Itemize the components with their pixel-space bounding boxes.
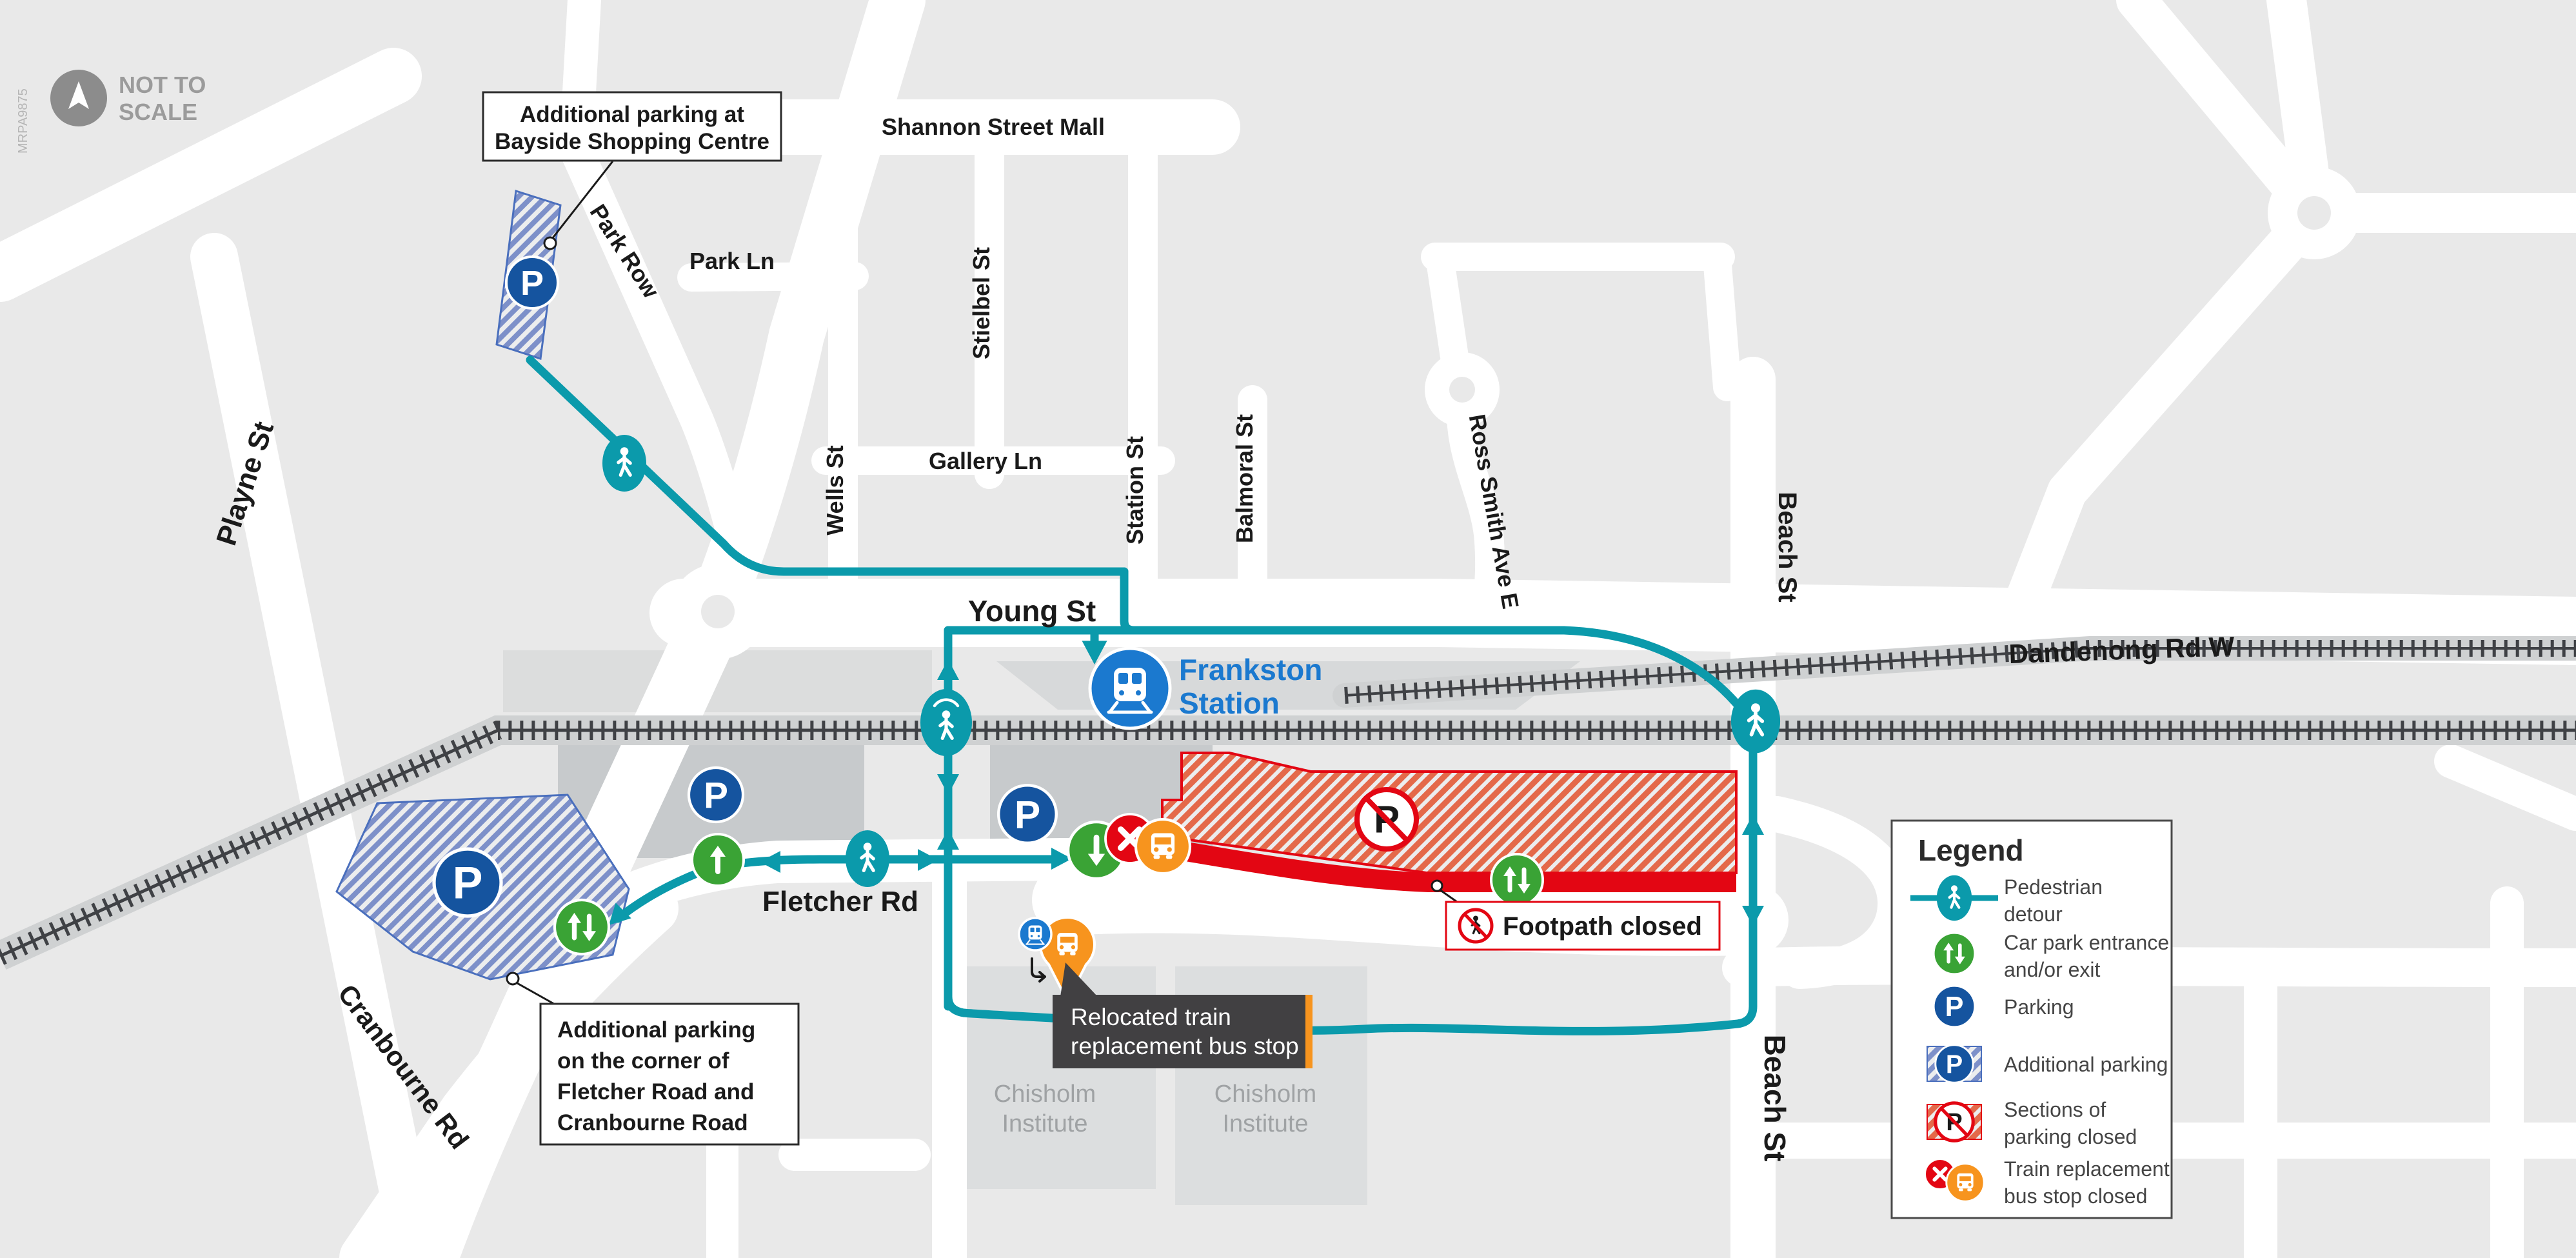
svg-text:parking closed: parking closed [2004, 1125, 2137, 1148]
tooltip-line2: replacement bus stop [1071, 1033, 1299, 1059]
parking-icon [434, 849, 501, 916]
svg-text:and/or exit: and/or exit [2004, 958, 2101, 981]
callout-corner-line2: on the corner of [557, 1048, 729, 1073]
road-park-ln [691, 276, 855, 277]
bus-stop-closed-icon [1947, 1164, 1984, 1201]
north-compass-icon [50, 70, 107, 126]
leader-dot [544, 237, 556, 249]
street-label-young: Young St [968, 594, 1096, 628]
street-label-beach-top: Beach St [1773, 492, 1801, 602]
tooltip-line1: Relocated train [1071, 1004, 1231, 1030]
street-label-station-st: Station St [1122, 436, 1148, 544]
legend-title: Legend [1918, 834, 2024, 867]
pedestrian-detour-icon [846, 830, 889, 887]
parking-icon [998, 785, 1056, 843]
station-name-line1: Frankston [1179, 653, 1322, 686]
callout-corner-line1: Additional parking [557, 1017, 755, 1043]
street-label-beach-bottom: Beach St [1758, 1035, 1792, 1162]
street-label-wells: Wells St [822, 445, 848, 535]
pedestrian-crossing-icon [1731, 690, 1780, 754]
carpark-entrance-icon [1491, 854, 1543, 906]
street-label-balmoral: Balmoral St [1231, 414, 1258, 543]
callout-bayside-line1: Additional parking at [520, 102, 744, 127]
svg-text:Pedestrian: Pedestrian [2004, 875, 2103, 899]
parking-closed-icon [1936, 1103, 1973, 1141]
frankston-station-map: P P [0, 0, 2576, 1258]
callout-corner-line3: Fletcher Road and [557, 1079, 754, 1104]
not-to-scale-line1: NOT TO [119, 72, 206, 98]
tooltip-orange-bar [1305, 995, 1313, 1068]
chisholm-2-line2: Institute [1222, 1110, 1308, 1137]
carpark-entrance-icon [555, 900, 609, 954]
pedestrian-detour-icon [602, 435, 646, 492]
svg-text:bus stop closed: bus stop closed [2004, 1184, 2147, 1208]
not-to-scale-line2: SCALE [119, 99, 197, 125]
svg-text:detour: detour [2004, 903, 2063, 926]
parking-icon [506, 257, 558, 308]
pedestrian-detour-icon [1937, 875, 1972, 921]
carpark-entrance-icon [692, 834, 744, 886]
svg-text:Additional parking: Additional parking [2004, 1053, 2168, 1076]
station-icon [1090, 648, 1170, 728]
parking-closed-icon [1357, 790, 1416, 849]
chisholm-1-line2: Institute [1002, 1110, 1087, 1137]
parking-icon [1936, 1045, 1973, 1083]
leader-dot [507, 973, 519, 984]
chisholm-2-line1: Chisholm [1214, 1081, 1316, 1108]
parking-icon [689, 768, 743, 822]
leader-dot [1432, 881, 1442, 891]
street-label-shannon: Shannon Street Mall [882, 114, 1105, 140]
svg-text:Sections of: Sections of [2004, 1098, 2106, 1121]
no-pedestrian-icon [1460, 910, 1492, 942]
footpath-closed-text: Footpath closed [1503, 912, 1702, 941]
carpark-entrance-icon [1934, 933, 1975, 974]
map-canvas: P P [0, 0, 2576, 1258]
svg-text:Train replacement: Train replacement [2004, 1157, 2170, 1181]
station-name-line2: Station [1179, 686, 1280, 720]
street-label-park-ln: Park Ln [689, 248, 775, 274]
svg-text:Car park entrance: Car park entrance [2004, 931, 2169, 954]
bus-stop-closed-icon [1136, 819, 1190, 874]
callout-corner-line4: Cranbourne Road [557, 1110, 748, 1135]
train-icon-small [1019, 918, 1051, 950]
svg-text:Parking: Parking [2004, 995, 2074, 1019]
street-label-fletcher: Fletcher Rd [762, 886, 918, 917]
map-ref-code: MRPA9875 [16, 88, 30, 154]
street-label-gallery: Gallery Ln [929, 448, 1042, 474]
legend: Legend Pedestrian detour Car park entran… [1892, 821, 2172, 1218]
chisholm-1-line1: Chisholm [994, 1081, 1096, 1108]
street-label-stielbel: Stielbel St [968, 247, 995, 359]
callout-bayside-line2: Bayside Shopping Centre [495, 129, 769, 154]
parking-icon [1934, 986, 1975, 1027]
pedestrian-crossing-icon [920, 689, 972, 756]
